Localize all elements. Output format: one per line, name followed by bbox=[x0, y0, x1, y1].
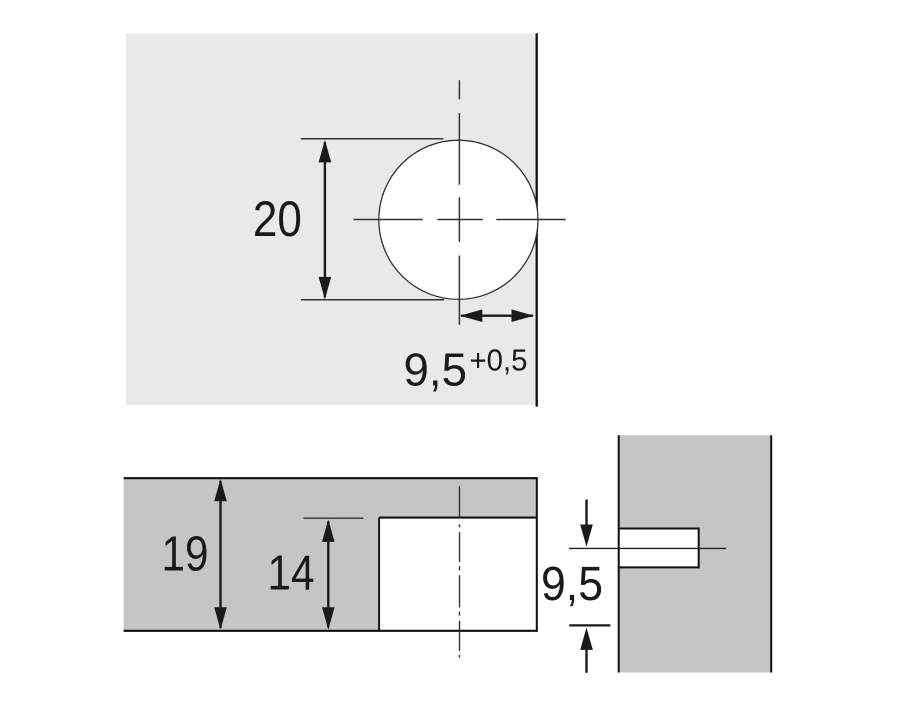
svg-text:9,5: 9,5 bbox=[541, 558, 603, 611]
svg-text:20: 20 bbox=[253, 191, 302, 247]
svg-text:14: 14 bbox=[268, 546, 315, 600]
svg-text:+0,5: +0,5 bbox=[470, 343, 528, 378]
svg-text:9,5: 9,5 bbox=[404, 343, 468, 395]
svg-text:19: 19 bbox=[162, 528, 209, 582]
